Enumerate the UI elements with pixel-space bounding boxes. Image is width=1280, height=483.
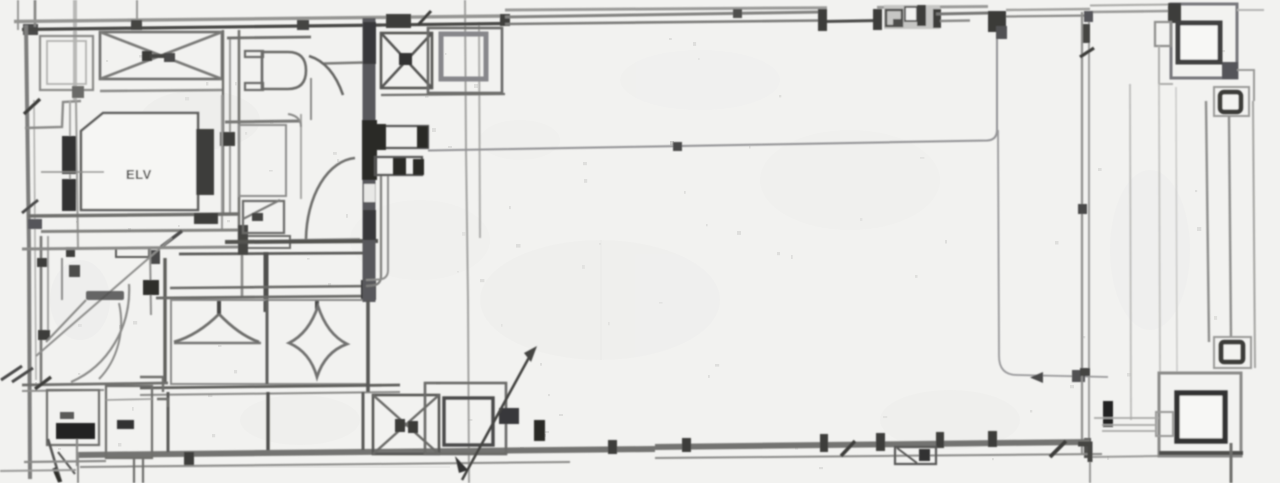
svg-text:ELV: ELV — [126, 167, 152, 182]
